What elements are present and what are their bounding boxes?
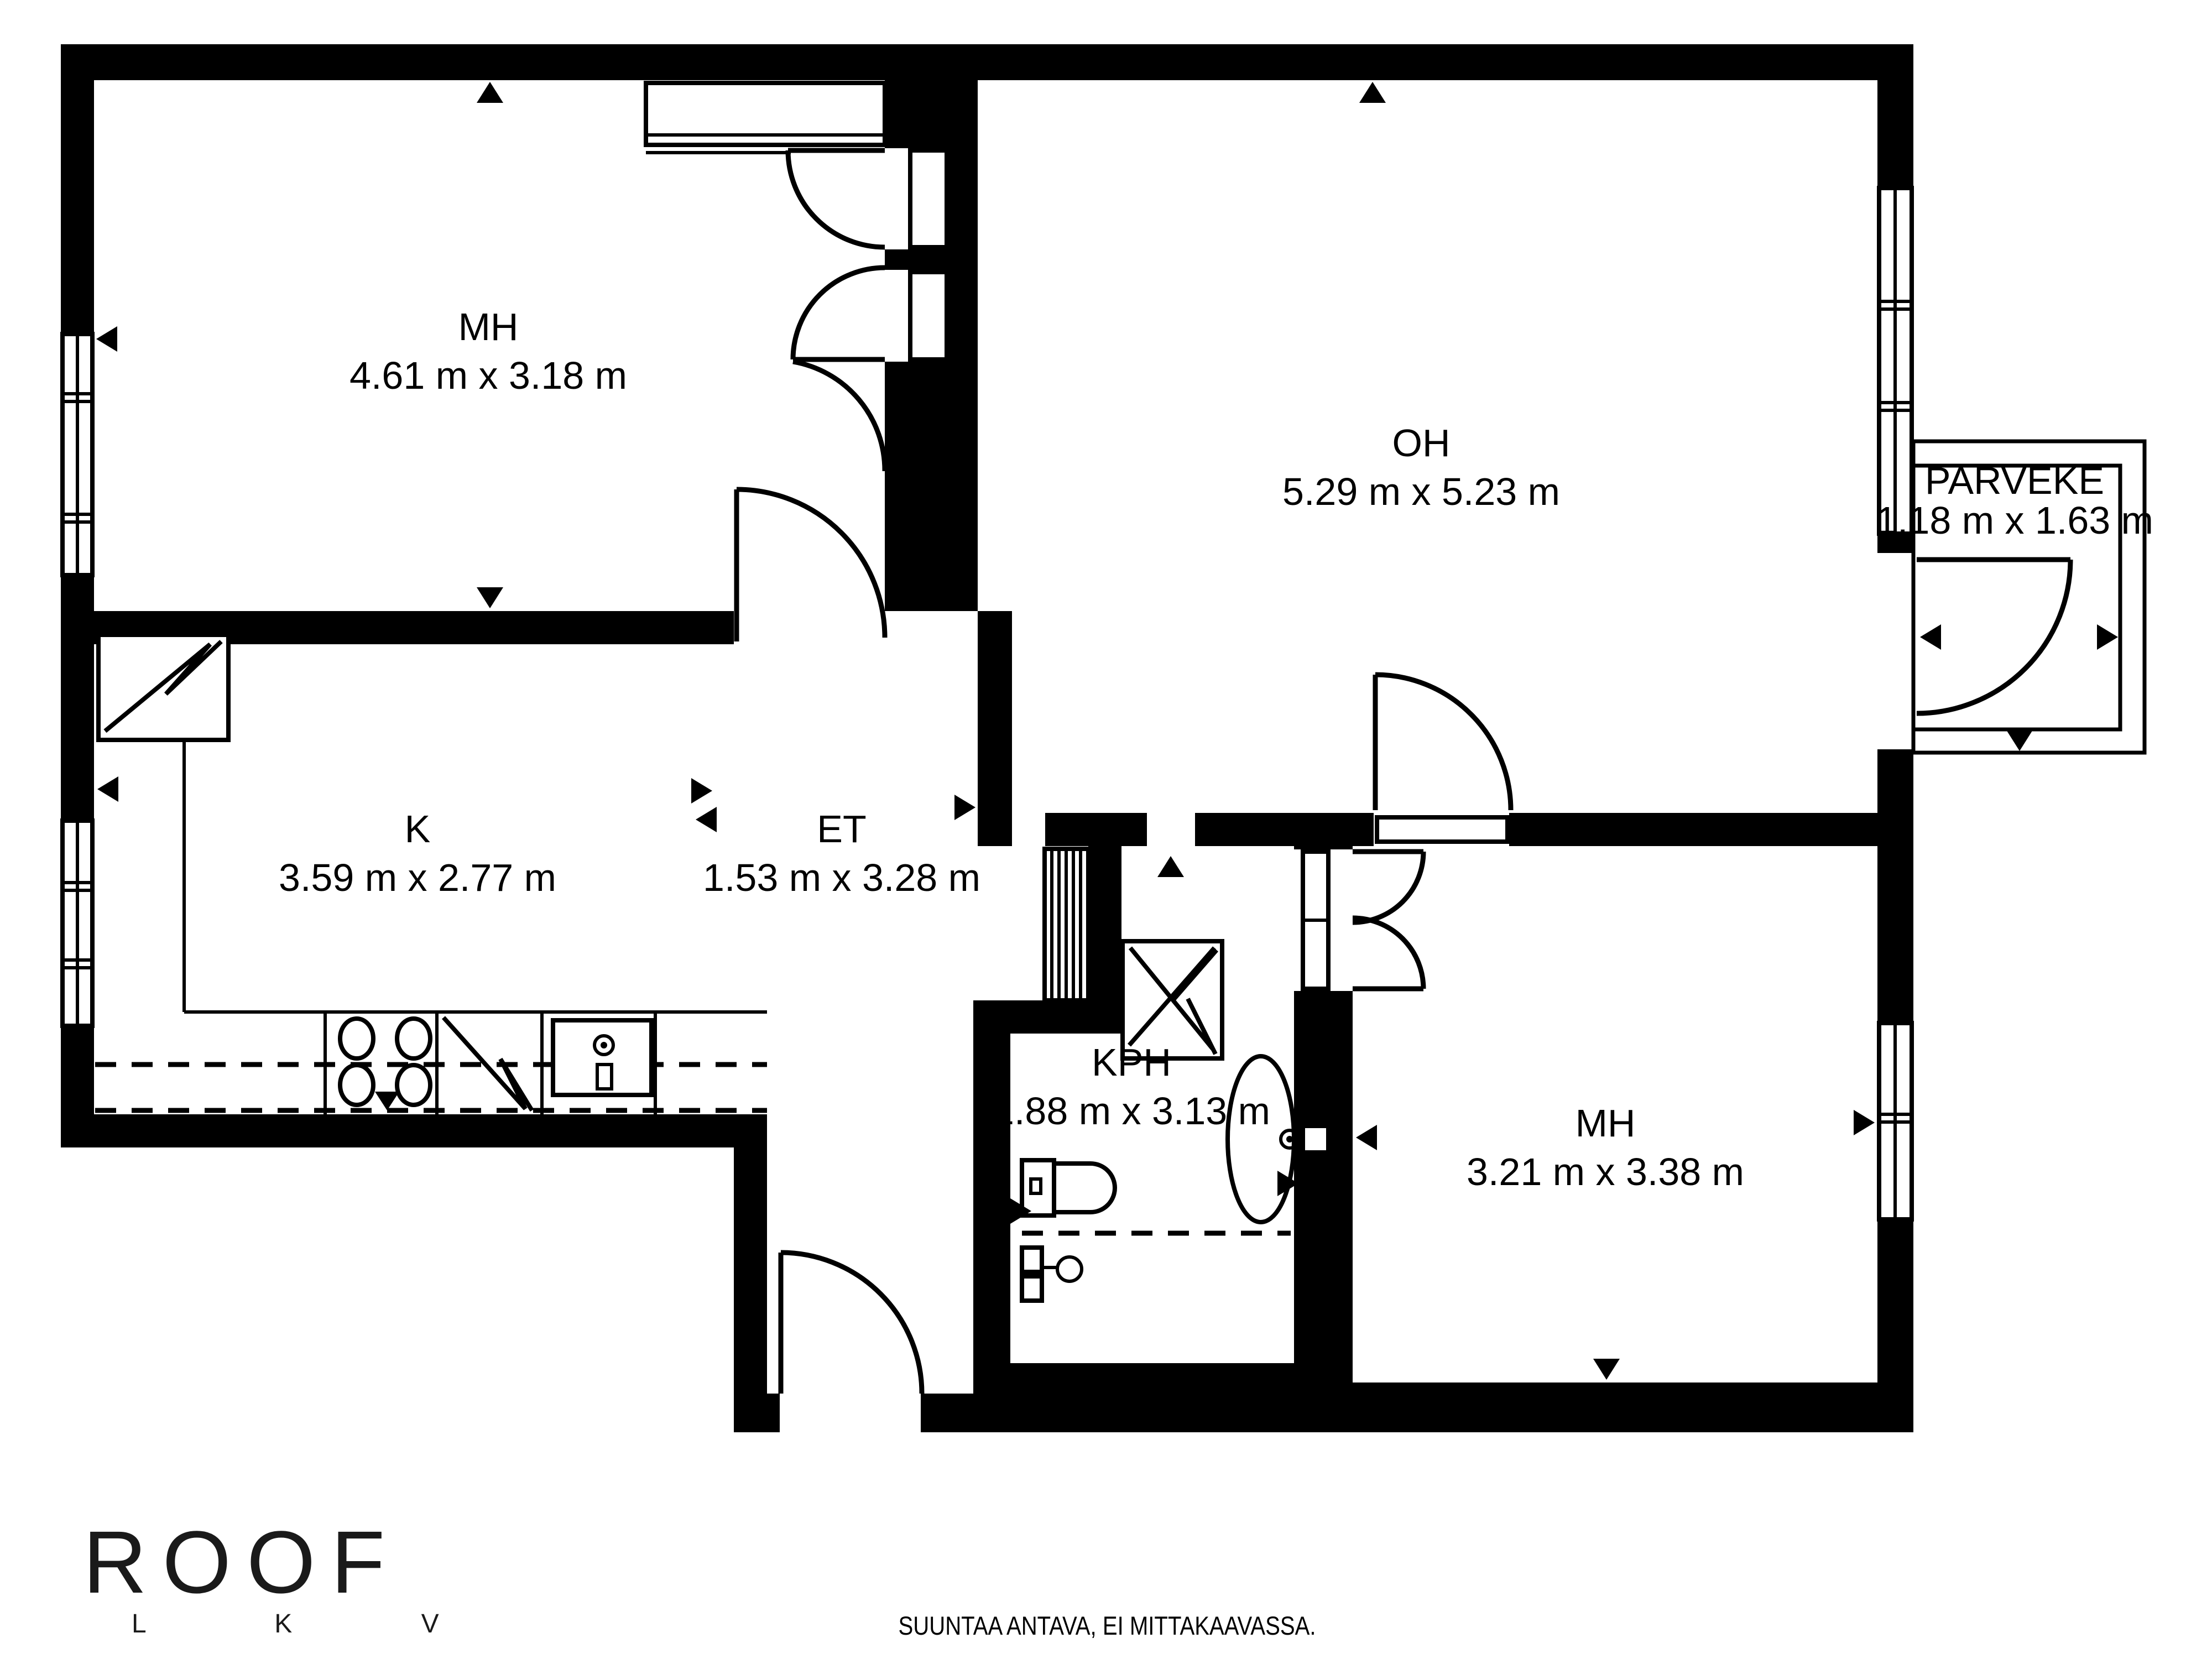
wardrobe-icon	[646, 83, 885, 153]
room-label: KPH	[1092, 1041, 1171, 1084]
door-threshold	[1377, 817, 1507, 842]
window-symbol	[62, 821, 92, 1026]
door-jamb	[910, 150, 947, 247]
window-symbol	[62, 334, 92, 575]
agency-logo-sub: L K V	[132, 1609, 500, 1639]
room-dims: 1.88 m x 3.13 m	[993, 1089, 1270, 1133]
room-label: K	[405, 807, 431, 851]
window-symbol	[1879, 1023, 1912, 1219]
window-symbol	[1879, 188, 1912, 534]
agency-logo: ROOF	[83, 1512, 400, 1611]
room-label: PARVEKE	[1925, 459, 2104, 502]
room-dims: 5.29 m x 5.23 m	[1282, 470, 1560, 513]
room-dims: 3.59 m x 2.77 m	[279, 856, 556, 899]
floor-plan: MH 4.61 m x 3.18 m OH 5.29 m x 5.23 m PA…	[0, 0, 2212, 1659]
room-dims: 1.18 m x 1.63 m	[1876, 499, 2153, 542]
kitchen-sink-icon	[553, 1020, 651, 1095]
disclaimer-text: SUUNTAA ANTAVA, EI MITTAKAAVASSA.	[899, 1611, 1316, 1640]
coat-closet-icon	[1045, 849, 1088, 1000]
room-label: MH	[1575, 1102, 1636, 1145]
room-label: OH	[1392, 421, 1451, 465]
door-jamb	[910, 272, 947, 359]
room-label: MH	[458, 305, 519, 348]
floor-plan-page: MH 4.61 m x 3.18 m OH 5.29 m x 5.23 m PA…	[0, 0, 2212, 1659]
toilet-icon	[1022, 1160, 1115, 1215]
room-dims: 1.53 m x 3.28 m	[703, 856, 980, 899]
room-dims: 3.21 m x 3.38 m	[1467, 1150, 1744, 1193]
room-label: ET	[817, 807, 866, 851]
room-dims: 4.61 m x 3.18 m	[349, 354, 627, 397]
